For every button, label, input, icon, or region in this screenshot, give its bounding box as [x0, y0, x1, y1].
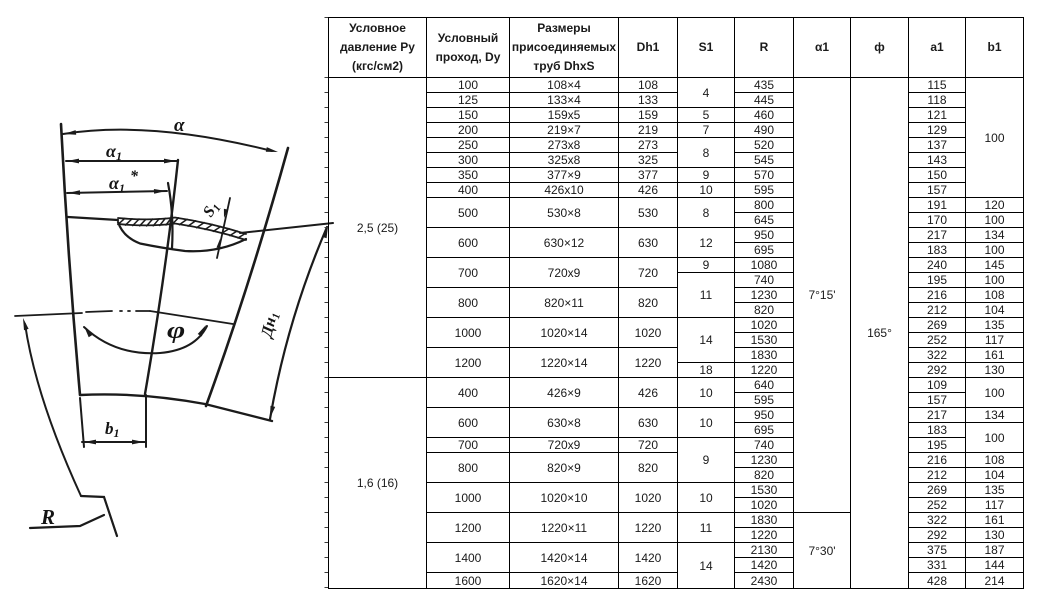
svg-text:α1: α1: [106, 141, 122, 163]
svg-text:Дн1: Дн1: [258, 310, 283, 341]
svg-text:R: R: [40, 505, 55, 529]
svg-text:b1: b1: [105, 419, 120, 440]
svg-text:α: α: [174, 115, 185, 136]
svg-text:φ: φ: [167, 317, 185, 344]
svg-text:S1: S1: [200, 199, 224, 221]
